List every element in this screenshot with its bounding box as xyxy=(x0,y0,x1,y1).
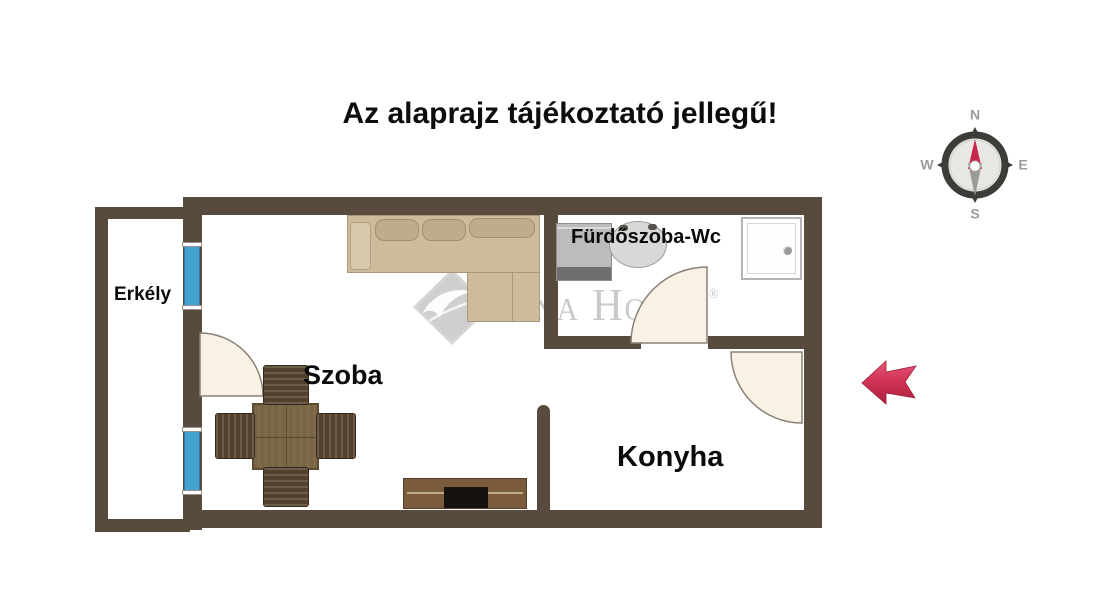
compass-label-east: E xyxy=(1018,157,1027,173)
compass-label-north: N xyxy=(970,107,980,123)
entrance-arrow-icon xyxy=(862,361,916,404)
compass-label-south: S xyxy=(970,206,979,222)
overlay-icons: N S W E xyxy=(0,0,1095,600)
floorplan-canvas: Duna House® xyxy=(0,0,1095,600)
compass-rose-icon: N S W E xyxy=(920,107,1027,222)
compass-label-west: W xyxy=(920,157,934,173)
